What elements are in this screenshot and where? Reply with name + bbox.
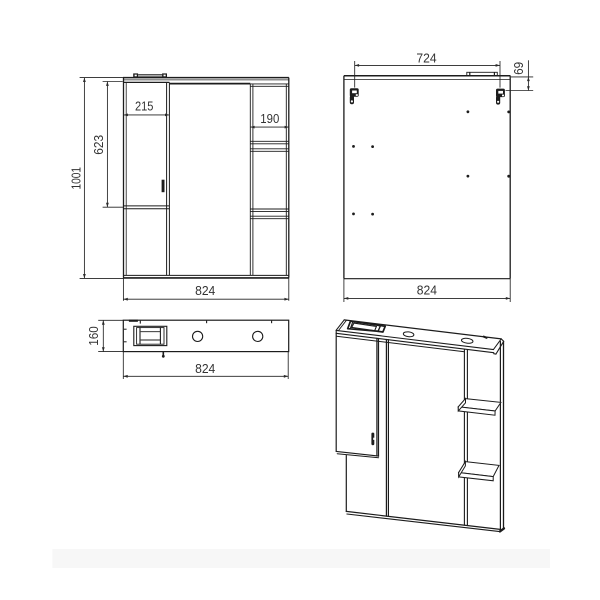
svg-text:824: 824 xyxy=(417,283,437,298)
svg-text:824: 824 xyxy=(195,361,215,376)
svg-text:724: 724 xyxy=(416,50,436,65)
svg-text:824: 824 xyxy=(195,283,215,298)
svg-text:160: 160 xyxy=(86,326,101,346)
svg-text:215: 215 xyxy=(135,99,154,114)
svg-text:190: 190 xyxy=(260,111,279,126)
svg-text:1001: 1001 xyxy=(68,167,83,190)
svg-text:69: 69 xyxy=(511,62,526,75)
svg-text:623: 623 xyxy=(91,135,106,155)
